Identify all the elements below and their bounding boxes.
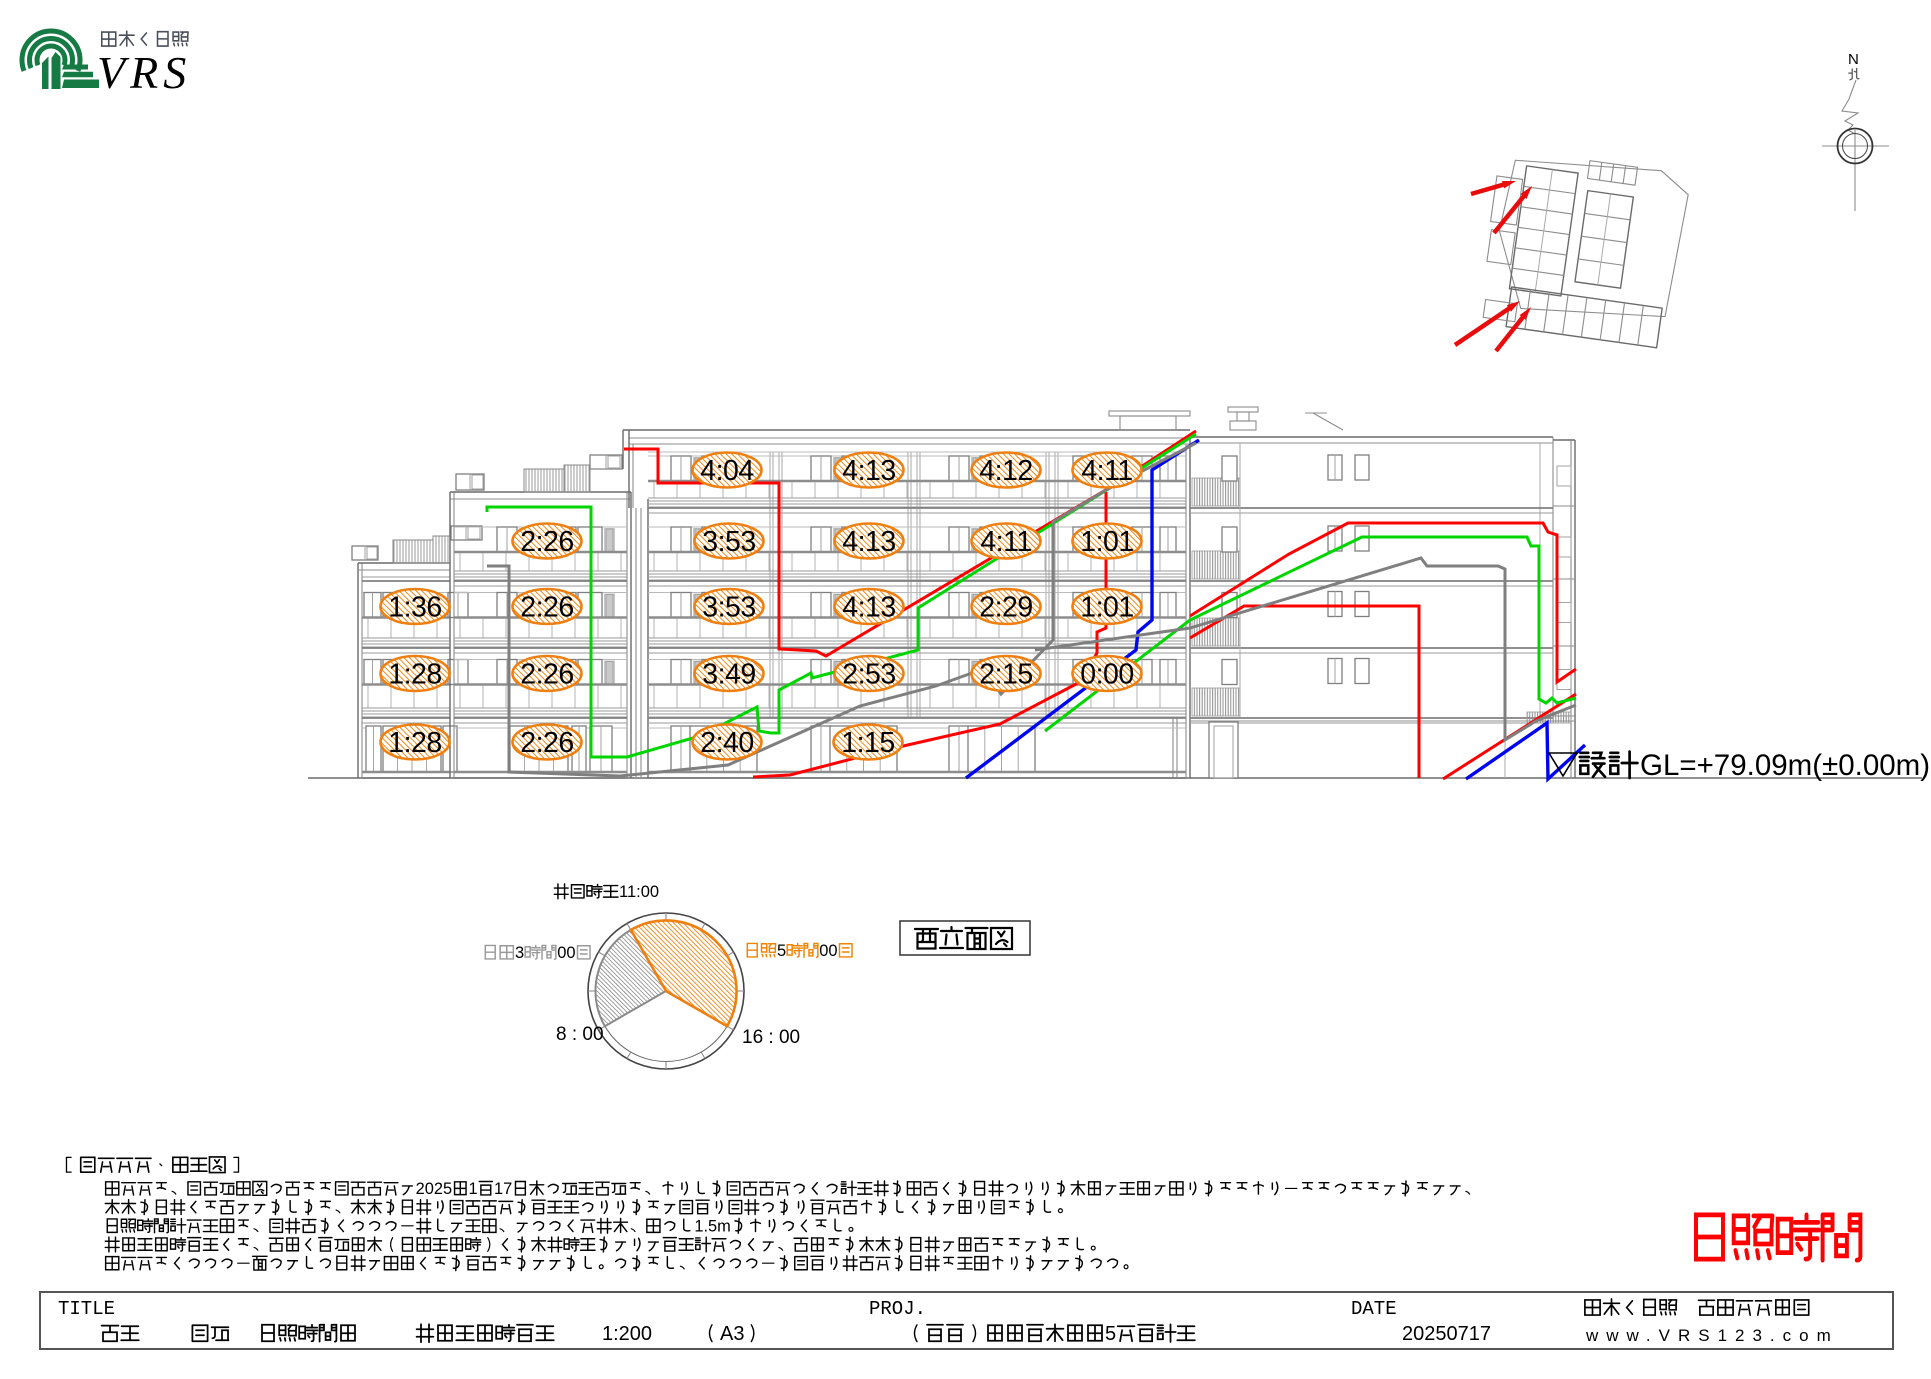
svg-text:DATE: DATE: [1351, 1298, 1397, 1320]
svg-text:2:15: 2:15: [979, 659, 1032, 691]
svg-text:VRS: VRS: [97, 47, 191, 98]
svg-text:1:28: 1:28: [388, 659, 441, 691]
svg-text:2025: 2025: [416, 1180, 452, 1198]
svg-text:3:53: 3:53: [702, 526, 755, 558]
svg-text:3: 3: [515, 944, 524, 962]
svg-text:4:12: 4:12: [979, 455, 1032, 487]
svg-text:8 : 00: 8 : 00: [556, 1024, 604, 1045]
svg-text:5: 5: [777, 942, 786, 960]
svg-text:1:36: 1:36: [388, 592, 441, 624]
svg-text:11:00: 11:00: [619, 883, 659, 901]
svg-text:1:01: 1:01: [1080, 592, 1133, 624]
svg-text:3:49: 3:49: [702, 659, 755, 691]
svg-text:4:13: 4:13: [842, 455, 895, 487]
svg-text:4:11: 4:11: [1081, 455, 1132, 487]
svg-text:17: 17: [494, 1180, 512, 1198]
svg-text:1: 1: [469, 1180, 478, 1198]
svg-text:4:11: 4:11: [980, 526, 1031, 558]
svg-text:2:53: 2:53: [842, 659, 895, 691]
svg-text:1:15: 1:15: [841, 727, 894, 759]
svg-text:00: 00: [819, 942, 837, 960]
svg-text:A3: A3: [720, 1323, 744, 1345]
svg-text:N: N: [1848, 51, 1859, 68]
svg-text:GL=+79.09m(±0.00m): GL=+79.09m(±0.00m): [1640, 749, 1930, 782]
svg-text:00: 00: [557, 944, 575, 962]
svg-text:2:26: 2:26: [520, 659, 573, 691]
svg-text:2:40: 2:40: [700, 727, 753, 759]
svg-text:2:29: 2:29: [979, 592, 1032, 624]
svg-text:16 : 00: 16 : 00: [742, 1027, 800, 1048]
svg-text:1:01: 1:01: [1080, 526, 1133, 558]
svg-text:TITLE: TITLE: [58, 1298, 115, 1320]
svg-text:4:13: 4:13: [842, 526, 895, 558]
svg-text:4:04: 4:04: [700, 455, 754, 487]
svg-text:PROJ.: PROJ.: [869, 1298, 926, 1320]
svg-text:0:00: 0:00: [1080, 659, 1133, 691]
svg-text:5: 5: [1105, 1323, 1116, 1345]
svg-text:2:26: 2:26: [520, 727, 573, 759]
svg-text:20250717: 20250717: [1402, 1323, 1491, 1345]
svg-text:2:26: 2:26: [520, 526, 573, 558]
svg-text:1.5m: 1.5m: [694, 1217, 730, 1235]
svg-text:www.VRS123.com: www.VRS123.com: [1585, 1326, 1839, 1345]
svg-text:2:26: 2:26: [520, 592, 573, 624]
svg-text:1:28: 1:28: [388, 727, 441, 759]
svg-text:1:200: 1:200: [602, 1323, 652, 1345]
svg-text:4:13: 4:13: [842, 592, 895, 624]
svg-text:3:53: 3:53: [702, 592, 755, 624]
